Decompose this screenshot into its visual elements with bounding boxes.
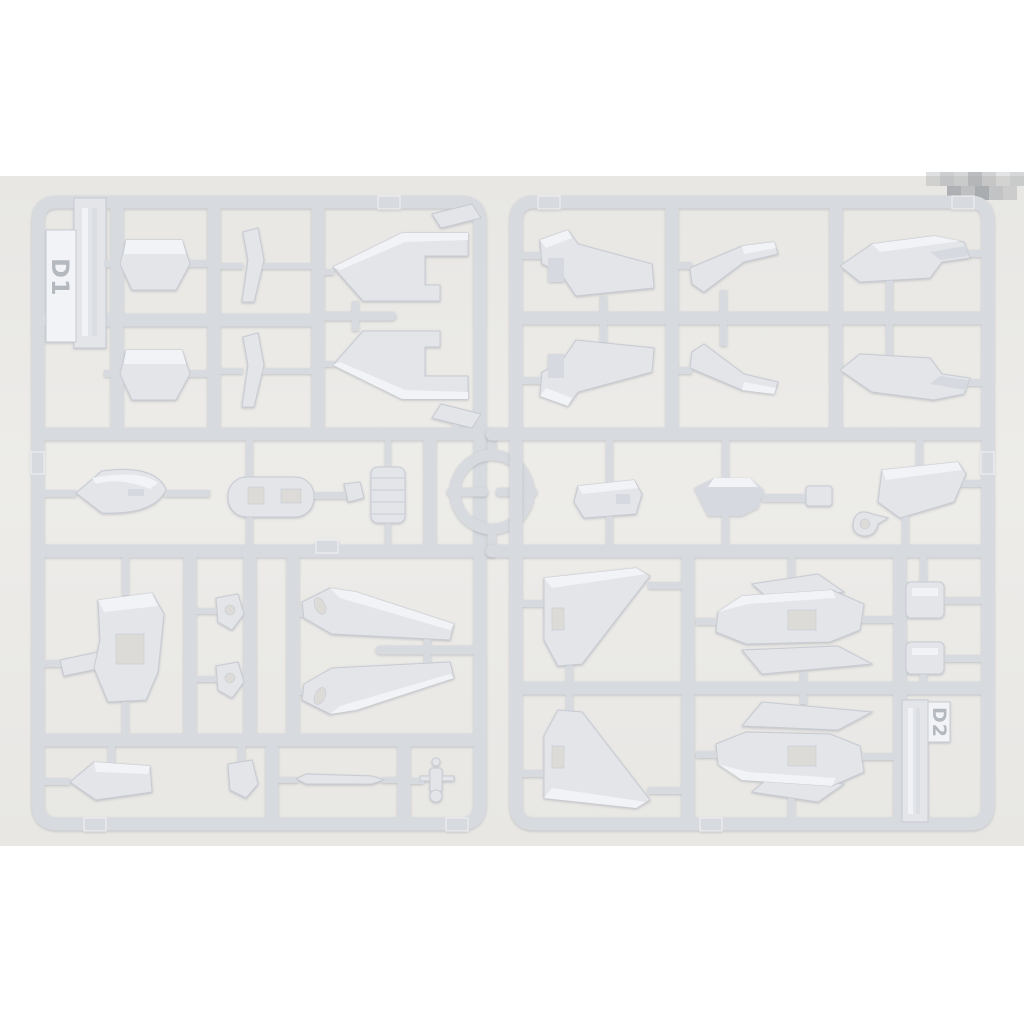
gate-tab xyxy=(981,452,994,474)
gate-tab xyxy=(378,196,400,209)
gate-tab xyxy=(952,196,974,209)
part-small-box-top xyxy=(906,556,984,618)
part-fuselage-top xyxy=(696,556,896,690)
part-nose-cone xyxy=(44,470,210,514)
sprue-runner-left: D1 xyxy=(31,196,492,831)
part-long-blade-bottom xyxy=(296,650,454,714)
part-box-connector xyxy=(574,440,642,546)
part-hex-plate xyxy=(694,440,832,546)
part-fin-top xyxy=(522,568,690,690)
part-wing-armor-bottom xyxy=(522,314,654,406)
part-thin-rod xyxy=(276,774,398,784)
part-oval-plate xyxy=(228,440,364,548)
part-curved-armor-top xyxy=(676,242,778,314)
sprue-runner-right: D2 xyxy=(492,196,994,831)
part-blade-bottom xyxy=(219,333,314,407)
part-fin-bottom xyxy=(522,686,690,808)
part-tiny-detail xyxy=(410,758,454,802)
part-frame-block xyxy=(44,557,164,736)
gate-tab xyxy=(84,818,106,831)
part-long-blade-top xyxy=(296,588,454,652)
part-wing-armor-top xyxy=(522,230,654,322)
sprue-illustration: D1 xyxy=(0,0,1024,1024)
part-small-bracket xyxy=(228,746,258,798)
runner-label-d2: D2 xyxy=(928,707,950,738)
part-curved-armor-bottom xyxy=(676,322,778,394)
runner-label-d1: D1 xyxy=(46,258,74,297)
part-chevron-armor-top xyxy=(316,204,481,316)
gate-tab xyxy=(316,540,338,553)
runner-tag-d2: D2 xyxy=(902,700,950,822)
gate-tab xyxy=(446,818,468,831)
part-boat-shield xyxy=(44,746,152,800)
part-leg-armor-top xyxy=(840,236,982,316)
runner-tag-d1: D1 xyxy=(46,198,106,348)
gate-tab xyxy=(31,452,44,474)
part-ribbed-cylinder xyxy=(371,440,405,546)
part-hook-wing xyxy=(853,440,984,546)
part-leg-armor-bottom xyxy=(840,322,982,400)
gate-tab xyxy=(538,196,560,209)
part-fuselage-bottom xyxy=(696,686,896,820)
product-photo: D1 xyxy=(0,0,1024,1024)
gate-tab xyxy=(700,818,722,831)
part-chevron-armor-bottom xyxy=(316,316,481,434)
part-blade-top xyxy=(219,228,314,302)
